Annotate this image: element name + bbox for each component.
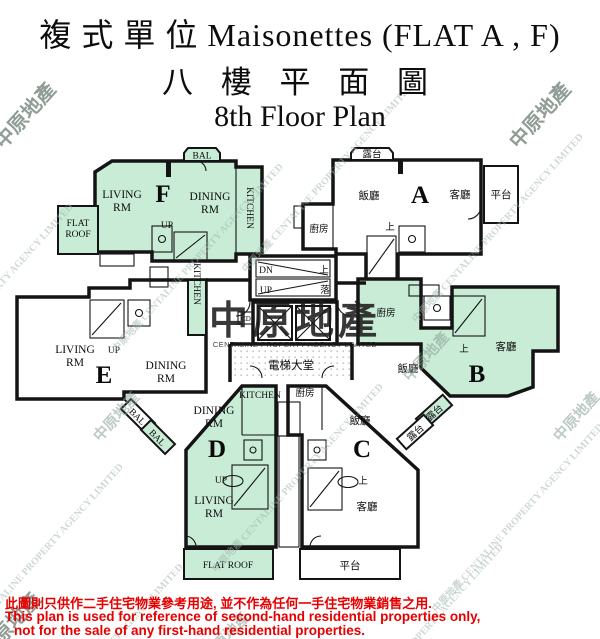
flat-f-flat-roof-label1: FLAT <box>67 219 90 229</box>
flat-d-letter: D <box>208 436 226 463</box>
flat-c-stair-label: 上 <box>358 476 368 487</box>
flat-d-balcony: BAL <box>141 420 175 454</box>
flat-a-living-label: 客廳 <box>450 188 471 201</box>
flat-f-flat-roof-label2: ROOF <box>65 230 90 240</box>
flat-f: BAL FLAT ROOF KITCHEN LIVING RM F DINING… <box>58 148 262 266</box>
wall-stub <box>398 160 403 174</box>
flat-d: KITCHEN DINING RM D UP LIVING RM FLAT RO… <box>141 386 281 579</box>
lift-lobby-label: 電梯大堂 <box>268 358 314 372</box>
flat-b-living-label: 客廳 <box>496 340 517 353</box>
floor-plan: BAL FLAT ROOF KITCHEN LIVING RM F DINING… <box>17 148 558 579</box>
flat-d-dining-label1: DINING <box>194 405 235 417</box>
flat-b-letter: B <box>469 361 486 388</box>
flat-a-dining-label: 飯廳 <box>359 189 380 202</box>
core-up-label: UP <box>260 286 272 296</box>
flat-c-kitchen-label: 廚房 <box>295 387 314 399</box>
flat-e-dining-label1: DINING <box>146 360 187 372</box>
wall-stub <box>166 161 171 177</box>
flat-d-kitchen-label: KITCHEN <box>239 391 281 401</box>
flat-d-living-label2: RM <box>205 508 223 520</box>
flat-f-dining-label1: DINING <box>190 191 231 203</box>
centre-watermark: 中原地產 CENTALINE PROPERTY AGENCY LIMITED <box>209 300 381 349</box>
disclaimer: 此圖則只供作二手住宅物業參考用途, 並不作為任何一手住宅物業銷售之用. This… <box>5 597 480 638</box>
centre-watermark-en: CENTALINE PROPERTY AGENCY LIMITED <box>213 340 378 349</box>
flat-f-living-label1: LIVING <box>102 189 142 201</box>
flat-e-letter: E <box>96 362 113 389</box>
flat-f-letter: F <box>155 181 170 208</box>
disclaimer-line2: This plan is used for reference of secon… <box>5 610 480 624</box>
centre-watermark-cjk: 中原地產 <box>209 300 381 343</box>
core-dn-label: DN <box>259 266 273 276</box>
page: { "title": { "line1": "複 式 單 位 Maisonett… <box>0 0 600 639</box>
disclaimer-line1: 此圖則只供作二手住宅物業參考用途, 並不作為任何一手住宅物業銷售之用. <box>5 597 480 610</box>
page-title: 複 式 單 位 Maisonettes (FLAT A , F) <box>0 10 600 56</box>
flat-d-dining-label2: RM <box>205 418 223 430</box>
title-block: 複 式 單 位 Maisonettes (FLAT A , F) 八 樓 平 面… <box>0 10 600 134</box>
flat-d-living-label1: LIVING <box>194 495 234 507</box>
flat-e-living-label1: LIVING <box>55 344 95 356</box>
flat-c-terrace-label: 平台 <box>340 559 361 572</box>
flat-b-stair-label: 上 <box>459 344 469 355</box>
flat-a-terrace-label: 平台 <box>491 188 512 201</box>
page-subtitle-cjk: 八 樓 平 面 圖 <box>0 57 600 102</box>
flat-c-balcony: 露台 <box>397 415 433 449</box>
disclaimer-line3: not for the sale of any first-hand resid… <box>5 624 480 638</box>
flat-f-balcony-label: BAL <box>193 152 212 162</box>
core-up-cjk-label: 上 <box>319 265 329 276</box>
flat-e-dining-label2: RM <box>157 373 175 385</box>
page-subtitle-en: 8th Floor Plan <box>0 100 600 134</box>
flat-e-living-label2: RM <box>66 357 84 369</box>
flat-a-balcony-label: 露台 <box>362 149 381 161</box>
flat-a-kitchen-label: 廚房 <box>309 223 328 235</box>
flat-c-letter: C <box>353 436 371 463</box>
flat-b: 廚房 上 客廳 飯廳 B 露台 <box>358 279 558 429</box>
flat-a-letter: A <box>411 182 429 209</box>
bay-window <box>100 254 134 266</box>
flat-f-living-label2: RM <box>113 202 131 214</box>
flat-f-dining-label2: RM <box>201 204 219 216</box>
core-down-cjk-label: 落 <box>320 284 330 296</box>
flat-c-living-label: 客廳 <box>357 500 378 513</box>
flat-a-stair-label: 上 <box>385 222 395 233</box>
watermark-text: 中原地產 CENTALINE PROPERTY AGENCY LIMITED <box>429 420 600 614</box>
